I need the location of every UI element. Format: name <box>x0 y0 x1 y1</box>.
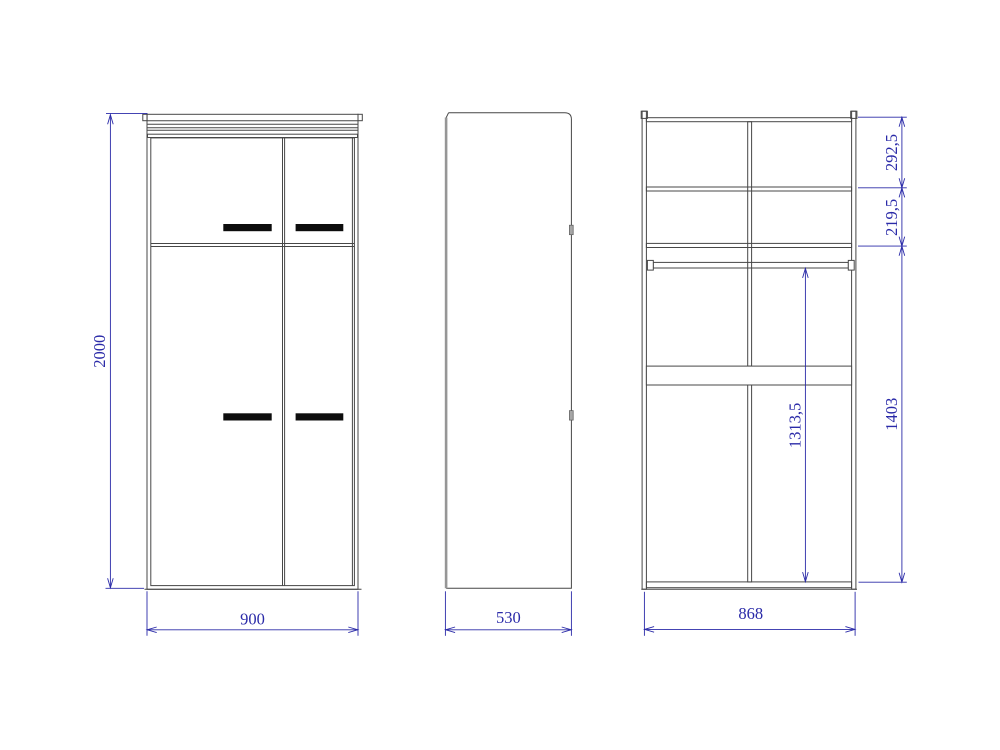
dimension-label-868: 868 <box>738 604 763 623</box>
dimension-label-292-5: 292,5 <box>882 134 901 171</box>
dimension-label-900: 900 <box>240 609 265 628</box>
bottom-panel <box>646 582 851 588</box>
side-outline <box>446 113 571 589</box>
doors-outline <box>151 138 355 586</box>
section-view <box>641 111 857 589</box>
dimension-depth-530: 530 <box>445 591 571 636</box>
crown-tab-right <box>358 114 362 120</box>
dimension-label-1403: 1403 <box>882 398 901 431</box>
hinge-mark-upper <box>569 225 573 235</box>
front-outline <box>147 114 358 589</box>
dimension-right-column: 292,5 219,5 1403 <box>858 117 907 582</box>
front-view <box>143 114 362 589</box>
dimension-width-868: 868 <box>644 592 855 636</box>
dimension-label-2000: 2000 <box>90 335 109 368</box>
dimension-label-219-5: 219,5 <box>882 199 901 236</box>
top-panel <box>646 118 851 122</box>
crown-band <box>148 134 358 137</box>
section-wall-right <box>852 111 856 589</box>
drawing-canvas: 2000 900 530 868 <box>0 0 1000 750</box>
rod-cap-right <box>848 260 854 270</box>
section-wall-left <box>642 111 646 589</box>
wardrobe-drawing: 2000 900 530 868 <box>0 0 1000 750</box>
hinge-mark-lower <box>569 411 573 421</box>
crown-molding <box>143 114 362 137</box>
front-doors <box>151 138 355 586</box>
divider-lower <box>748 385 752 582</box>
hanging-rod <box>647 260 854 270</box>
side-top-left-step <box>446 113 449 118</box>
shelf-middle <box>646 243 851 247</box>
dimension-height-2000: 2000 <box>90 113 148 588</box>
door-handle-lower-left <box>223 413 271 420</box>
shelf-upper <box>646 187 851 191</box>
door-handle-upper-right <box>296 224 344 231</box>
dimension-label-530: 530 <box>496 608 521 627</box>
mid-rail <box>646 366 851 385</box>
door-handle-upper-left <box>223 224 271 231</box>
dimension-rod-1313-5: 1313,5 <box>786 268 809 581</box>
side-view <box>446 113 573 589</box>
door-handle-lower-right <box>296 413 344 420</box>
rod-body <box>653 262 848 268</box>
rod-cap-left <box>647 260 653 270</box>
crown-tab-left <box>143 114 147 120</box>
dimension-width-900: 900 <box>147 591 358 636</box>
dimension-label-1313-5: 1313,5 <box>786 403 805 448</box>
